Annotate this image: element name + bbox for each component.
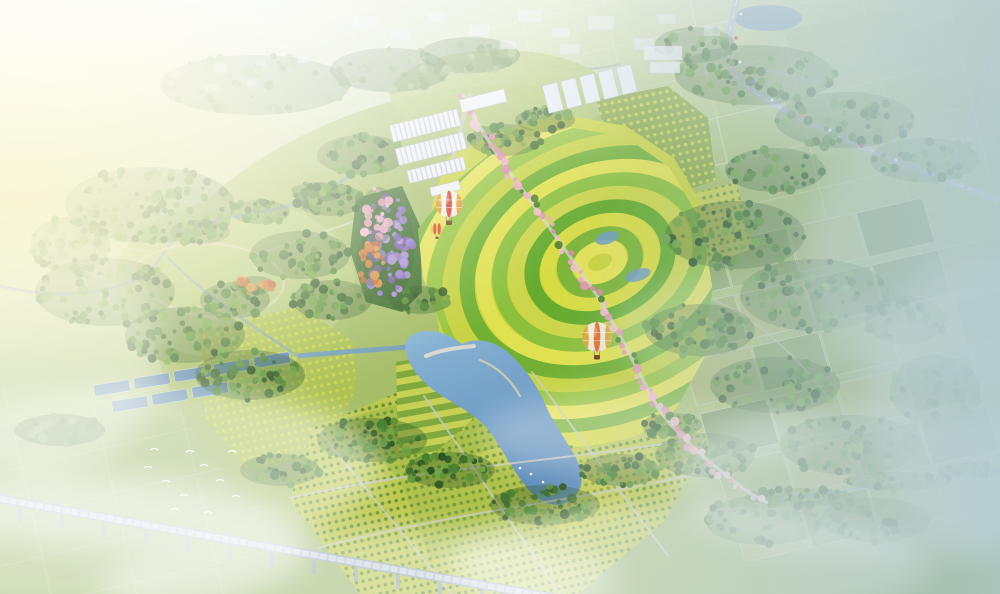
- sun-glow: [0, 0, 1000, 594]
- aerial-landscape-rendering: [0, 0, 1000, 594]
- scene-canvas: [0, 0, 1000, 594]
